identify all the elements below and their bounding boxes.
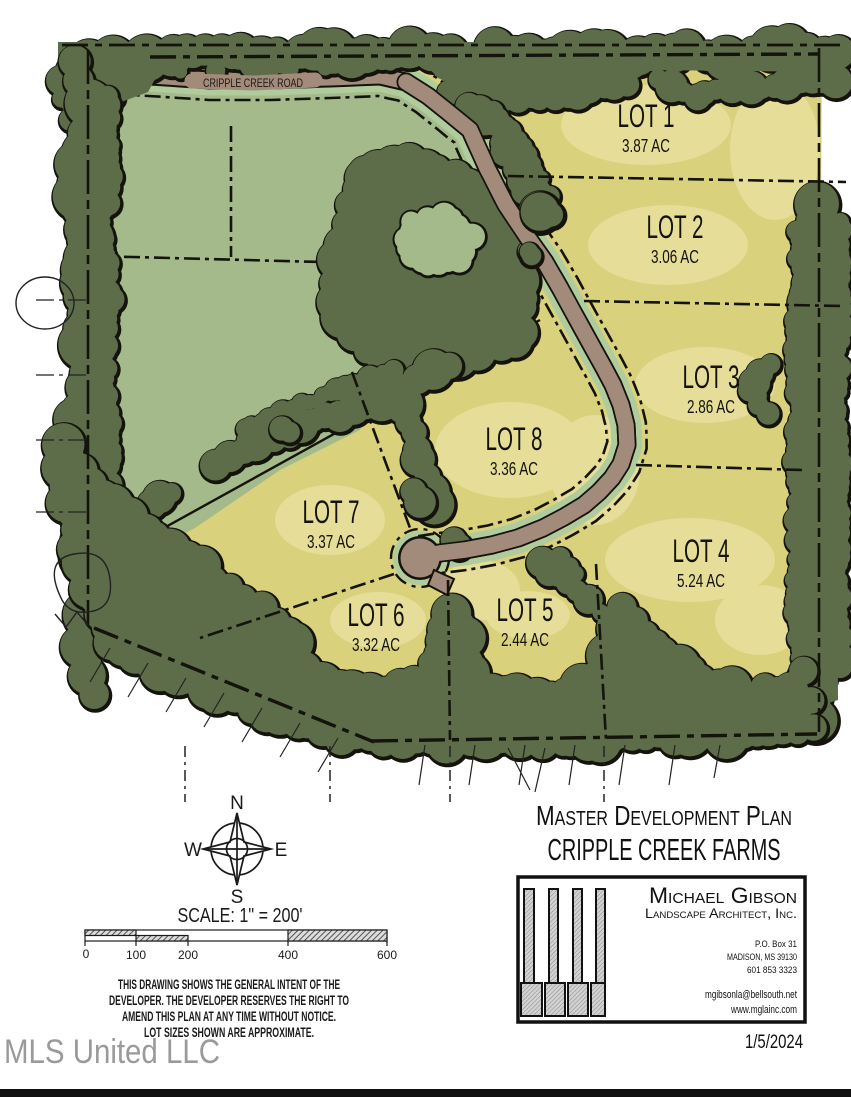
svg-text:E: E [275, 840, 288, 861]
svg-text:MADISON, MS 39130: MADISON, MS 39130 [727, 952, 797, 963]
svg-text:CRIPPLE CREEK ROAD: CRIPPLE CREEK ROAD [203, 78, 303, 90]
svg-text:2.44 AC: 2.44 AC [501, 630, 549, 650]
svg-text:LOT 8: LOT 8 [486, 421, 543, 457]
svg-text:CRIPPLE CREEK FARMS: CRIPPLE CREEK FARMS [548, 832, 781, 867]
svg-text:www.mglainc.com: www.mglainc.com [730, 1004, 797, 1016]
svg-text:THIS DRAWING SHOWS THE GENERAL: THIS DRAWING SHOWS THE GENERAL INTENT OF… [118, 977, 340, 992]
svg-text:LOT 3: LOT 3 [683, 359, 740, 395]
svg-text:100: 100 [126, 948, 146, 962]
svg-text:W: W [184, 840, 202, 861]
svg-text:1/5/2024: 1/5/2024 [745, 1032, 803, 1053]
svg-text:N: N [230, 793, 244, 814]
svg-text:2.86 AC: 2.86 AC [687, 397, 735, 417]
svg-text:LOT 2: LOT 2 [647, 209, 704, 245]
svg-text:LOT 6: LOT 6 [348, 597, 405, 633]
svg-text:3.06 AC: 3.06 AC [651, 247, 699, 267]
svg-text:LOT 5: LOT 5 [497, 592, 554, 628]
svg-text:5.24 AC: 5.24 AC [677, 571, 725, 591]
svg-text:Master Development Plan: Master Development Plan [536, 800, 792, 831]
svg-text:600: 600 [377, 948, 397, 962]
svg-text:DEVELOPER. THE DEVELOPER RESE: DEVELOPER. THE DEVELOPER RESERVES THE RI… [109, 993, 349, 1008]
svg-text:P.O. Box 31: P.O. Box 31 [755, 939, 797, 950]
svg-text:3.32 AC: 3.32 AC [352, 635, 400, 655]
svg-text:3.87 AC: 3.87 AC [622, 136, 670, 156]
svg-text:400: 400 [278, 948, 298, 962]
svg-text:Landscape Architect, Inc.: Landscape Architect, Inc. [645, 906, 797, 921]
svg-text:AMEND THIS PLAN AT ANY TIME WI: AMEND THIS PLAN AT ANY TIME WITHOUT NOTI… [122, 1009, 336, 1024]
svg-text:3.36 AC: 3.36 AC [490, 459, 538, 479]
svg-text:Michael Gibson: Michael Gibson [649, 883, 797, 908]
svg-text:200: 200 [178, 948, 198, 962]
svg-text:SCALE: 1" = 200': SCALE: 1" = 200' [178, 905, 303, 927]
svg-text:mgibsonla@bellsouth.net: mgibsonla@bellsouth.net [705, 989, 797, 1001]
svg-text:LOT 1: LOT 1 [618, 98, 675, 134]
svg-text:MLS United LLC: MLS United LLC [4, 1033, 220, 1071]
svg-text:601 853 3323: 601 853 3323 [747, 965, 797, 976]
svg-text:0: 0 [83, 947, 90, 961]
svg-text:3.37 AC: 3.37 AC [307, 532, 355, 552]
svg-text:LOT 4: LOT 4 [673, 533, 730, 569]
svg-text:LOT 7: LOT 7 [303, 494, 360, 530]
